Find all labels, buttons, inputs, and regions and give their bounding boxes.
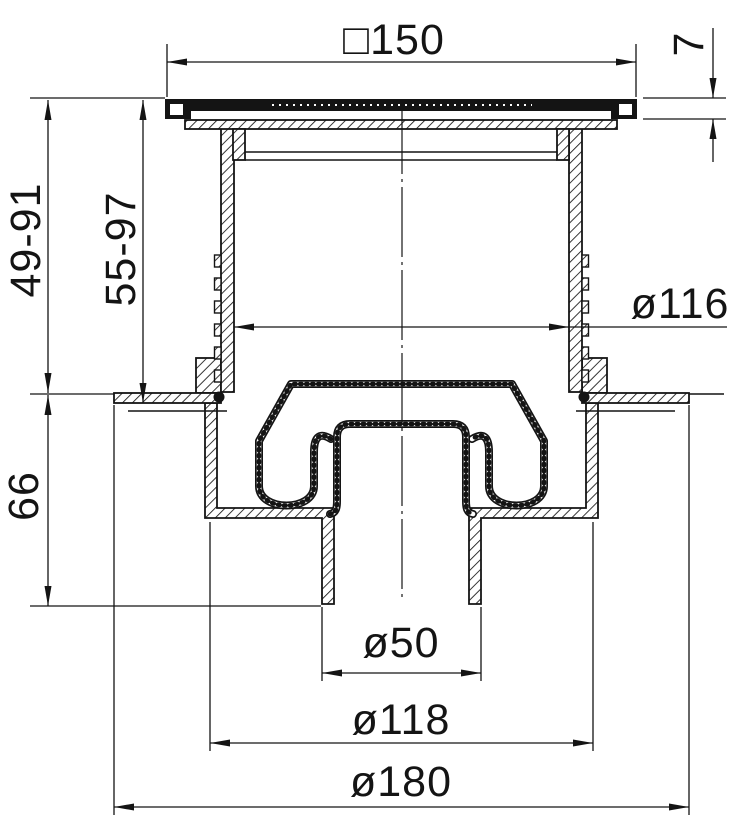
drain-section-drawing: □150 7 49-91 55-97 66 ø116 ø50 ø118 ø180 xyxy=(0,0,732,824)
grate-seat-edges xyxy=(245,152,557,160)
extension-wall-right xyxy=(569,128,582,392)
grate-seat-right xyxy=(557,129,569,160)
extension-top-flange xyxy=(185,120,617,129)
dim-label-flange-diameter: ø180 xyxy=(350,758,452,806)
body-flange-left xyxy=(114,393,221,403)
technical-drawing-page: □150 7 49-91 55-97 66 ø116 ø50 ø118 ø180 xyxy=(0,0,732,824)
dim-label-top-width: □150 xyxy=(343,16,445,64)
dim-label-bowl-diameter: ø118 xyxy=(352,696,451,744)
dim-label-grate-thickness: 7 xyxy=(665,32,713,57)
dim-label-outlet-diameter: ø50 xyxy=(362,619,439,667)
grate-assembly xyxy=(165,99,637,119)
grate-seat-left xyxy=(233,129,245,160)
extension-tube xyxy=(185,120,617,392)
o-ring-seal-right xyxy=(579,392,590,403)
o-ring-seal-left xyxy=(214,392,225,403)
dim-label-depth-outer: 49-91 xyxy=(2,183,50,298)
dim-label-body-height: 66 xyxy=(0,471,48,521)
dim-label-thread-diameter: ø116 xyxy=(631,280,730,328)
dim-label-depth-inner: 55-97 xyxy=(97,192,145,307)
frame-clip-right-hole xyxy=(619,104,632,115)
extension-wall-left xyxy=(221,128,234,392)
frame-clip-left-hole xyxy=(170,104,183,115)
body-flange-right xyxy=(582,393,689,403)
